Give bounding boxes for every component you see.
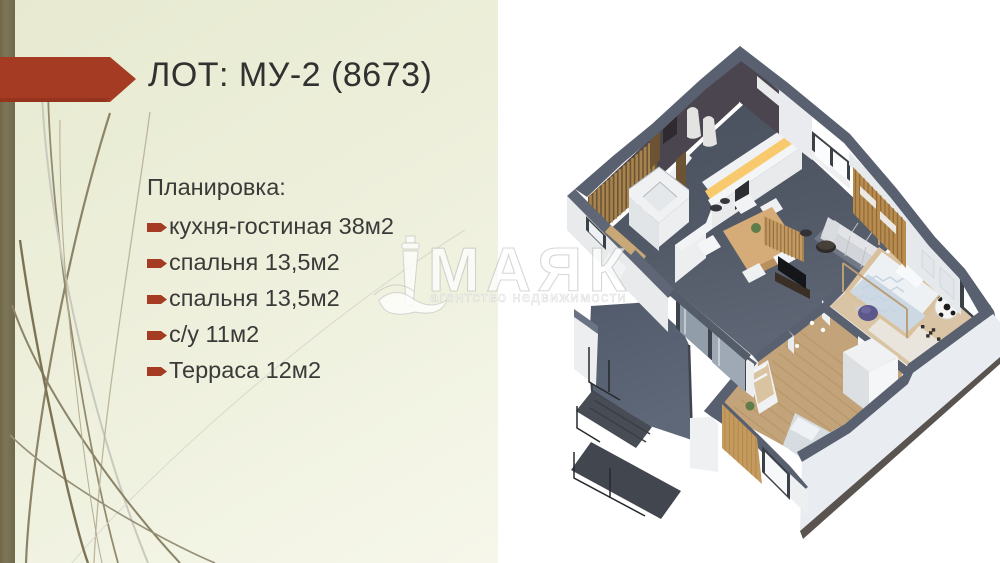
svg-text:агентство недвижимости: агентство недвижимости	[430, 289, 627, 306]
